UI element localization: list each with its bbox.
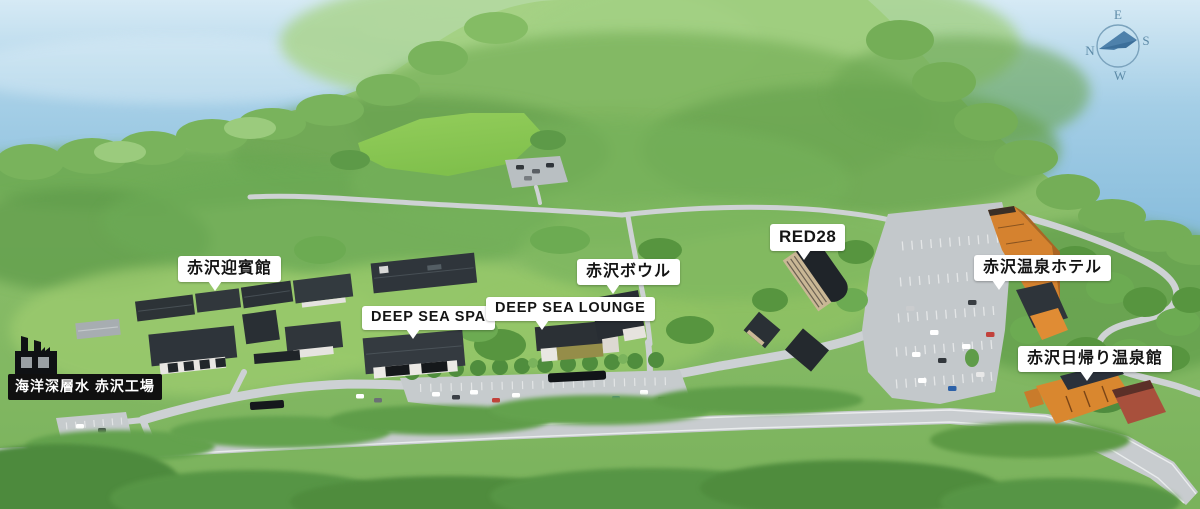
label-red28[interactable]: RED28: [770, 224, 845, 251]
label-onsen-hotel-text: 赤沢温泉ホテル: [983, 259, 1102, 276]
label-onsen-hotel[interactable]: 赤沢温泉ホテル: [974, 255, 1111, 281]
label-pointer: [606, 284, 620, 294]
label-factory-text: 海洋深層水 赤沢工場: [15, 378, 155, 394]
label-pointer: [992, 280, 1006, 290]
label-higaeri-onsenkan[interactable]: 赤沢日帰り温泉館: [1018, 346, 1172, 372]
label-higaeri-onsenkan-text: 赤沢日帰り温泉館: [1027, 350, 1163, 367]
resort-map: E S W N 赤沢迎賓館 DEEP SEA SPA DEEP SEA LOUN…: [0, 0, 1200, 509]
label-red28-text: RED28: [779, 227, 836, 246]
label-pointer: [406, 329, 420, 339]
label-deep-sea-lounge[interactable]: DEEP SEA LOUNGE: [486, 297, 655, 321]
label-pointer: [208, 281, 222, 291]
compass-north: N: [1085, 43, 1095, 58]
label-pointer: [1080, 371, 1094, 381]
label-geihinkan-text: 赤沢迎賓館: [187, 260, 272, 277]
compass-west: W: [1114, 68, 1127, 83]
label-pointer: [535, 320, 549, 330]
east-parking-lot: [862, 202, 1012, 404]
label-geihinkan[interactable]: 赤沢迎賓館: [178, 256, 281, 282]
label-factory: 海洋深層水 赤沢工場: [8, 374, 162, 400]
label-deep-sea-spa-text: DEEP SEA SPA: [371, 309, 486, 325]
label-pointer: [797, 250, 811, 260]
label-deep-sea-spa[interactable]: DEEP SEA SPA: [362, 306, 495, 330]
compass-east: E: [1114, 7, 1122, 22]
label-bowl[interactable]: 赤沢ボウル: [577, 259, 680, 285]
compass-south: S: [1142, 33, 1149, 48]
label-bowl-text: 赤沢ボウル: [586, 263, 671, 280]
label-deep-sea-lounge-text: DEEP SEA LOUNGE: [495, 300, 646, 316]
